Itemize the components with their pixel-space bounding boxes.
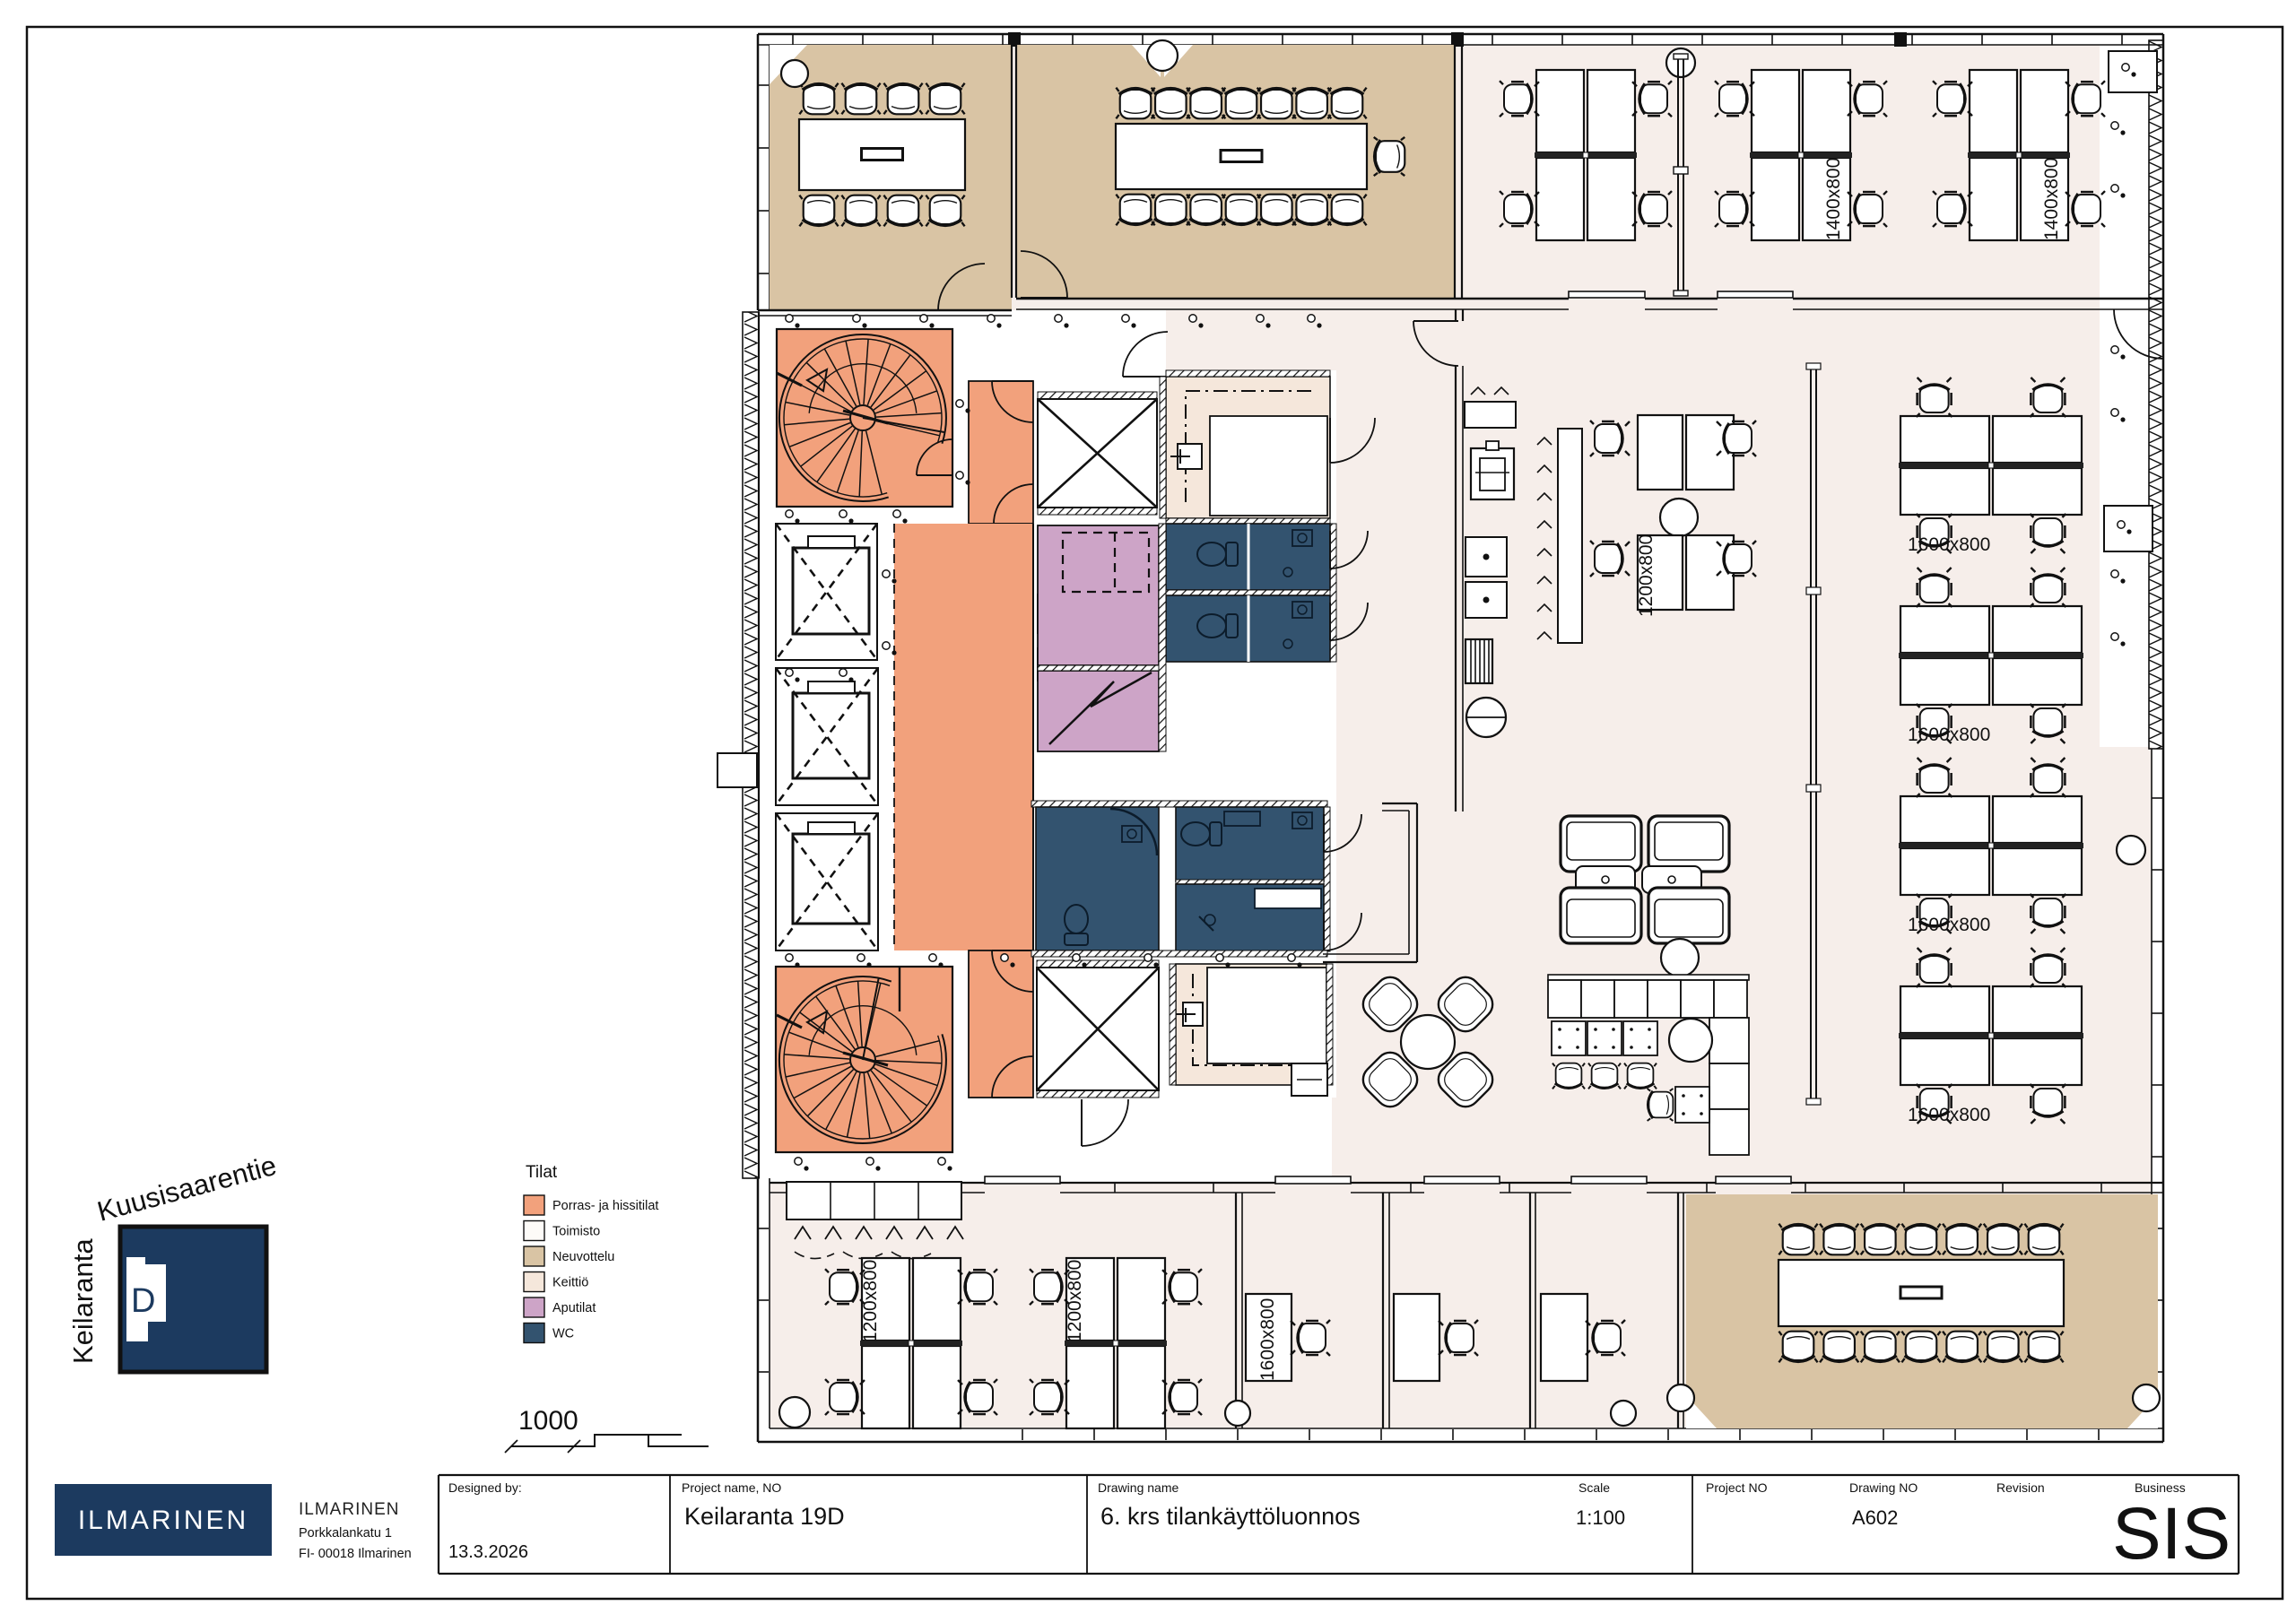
svg-text:Tilat: Tilat [526,1163,558,1182]
svg-text:1600x800: 1600x800 [1257,1298,1278,1381]
svg-text:A602: A602 [1852,1506,1898,1529]
svg-text:1200x800: 1200x800 [1065,1260,1085,1342]
svg-text:Porras- ja hissitilat: Porras- ja hissitilat [552,1199,658,1213]
svg-text:Keilaranta 19D: Keilaranta 19D [684,1503,845,1530]
svg-text:6. krs tilankäyttöluonnos: 6. krs tilankäyttöluonnos [1100,1503,1361,1530]
svg-text:1600x800: 1600x800 [1908,1105,1990,1125]
svg-text:Project name, NO: Project name, NO [682,1480,781,1495]
svg-text:Neuvottelu: Neuvottelu [552,1250,614,1264]
svg-text:D: D [131,1282,155,1320]
svg-text:1600x800: 1600x800 [1908,534,1990,555]
svg-text:ILMARINEN: ILMARINEN [78,1506,248,1535]
svg-text:1600x800: 1600x800 [1908,725,1990,745]
svg-text:1200x800: 1200x800 [860,1260,881,1342]
svg-text:Drawing name: Drawing name [1098,1480,1178,1495]
svg-text:1000: 1000 [518,1406,578,1436]
svg-text:Toimisto: Toimisto [552,1225,600,1239]
svg-text:SIS: SIS [2112,1493,2231,1575]
svg-text:Drawing NO: Drawing NO [1849,1480,1918,1495]
svg-text:ILMARINEN: ILMARINEN [299,1500,399,1519]
svg-text:Designed by:: Designed by: [448,1480,522,1495]
svg-text:1400x800: 1400x800 [2041,158,2062,240]
svg-text:Keittiö: Keittiö [552,1276,588,1290]
svg-text:1400x800: 1400x800 [1823,158,1844,240]
svg-text:1600x800: 1600x800 [1908,915,1990,935]
svg-text:1200x800: 1200x800 [1636,534,1657,617]
svg-text:Porkkalankatu 1: Porkkalankatu 1 [299,1526,392,1541]
svg-text:1:100: 1:100 [1576,1506,1625,1529]
svg-text:Keilaranta: Keilaranta [67,1238,99,1364]
svg-text:FI- 00018 Ilmarinen: FI- 00018 Ilmarinen [299,1547,412,1561]
svg-text:Project NO: Project NO [1706,1480,1768,1495]
svg-text:13.3.2026: 13.3.2026 [448,1542,528,1562]
svg-text:Revision: Revision [1996,1480,2045,1495]
svg-text:WC: WC [552,1327,574,1341]
svg-text:Aputilat: Aputilat [552,1301,596,1315]
svg-text:Scale: Scale [1578,1480,1610,1495]
